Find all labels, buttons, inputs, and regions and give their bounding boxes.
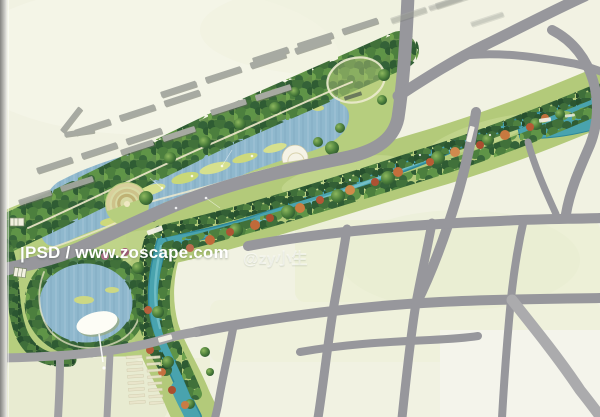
striped-kiosk-south xyxy=(13,267,26,278)
watermark-handle: @zy小生 xyxy=(243,245,308,269)
striped-kiosk-north xyxy=(10,218,24,226)
masterplan-map xyxy=(0,0,600,417)
watermark-bar: | xyxy=(20,244,25,264)
watermark-text: PSD / www.zoscape.com xyxy=(25,243,229,262)
page-edge xyxy=(0,0,9,417)
watermark: |PSD / www.zoscape.com xyxy=(20,243,229,263)
masterplan-rendering: |PSD / www.zoscape.com @zy小生 xyxy=(0,0,600,417)
